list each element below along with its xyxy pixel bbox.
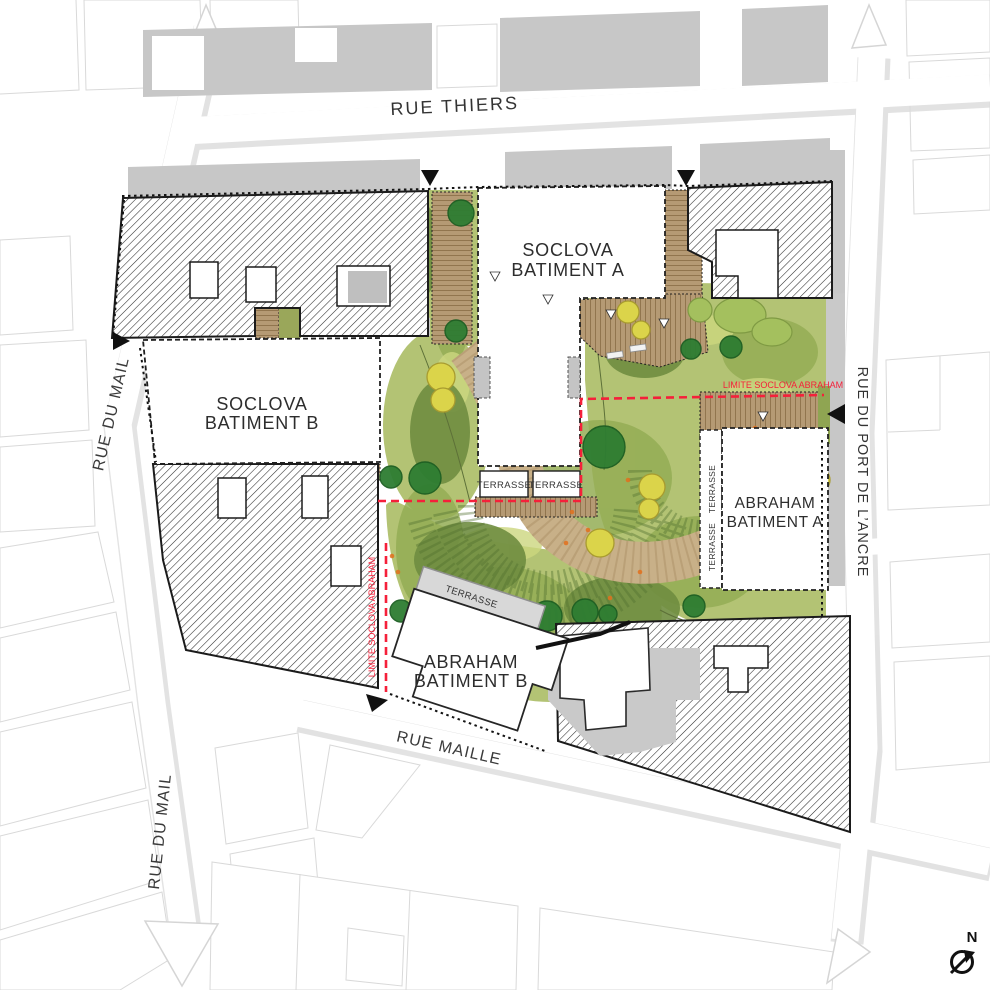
- limit-label-left: LIMITE SOCLOVA ABRAHAM: [367, 557, 377, 677]
- terrasse-label-2: TERRASSE: [529, 480, 583, 491]
- building-abraham-b-label-line2: BATIMENT B: [414, 671, 528, 691]
- soclova-a-balcony-right: [568, 357, 580, 398]
- terrasse-label-1: TERRASSE: [477, 480, 531, 491]
- terrasse-label-4: TERRASSE: [707, 523, 717, 571]
- building-soclova-a-label-line2: BATIMENT A: [511, 260, 624, 280]
- north-label: N: [967, 929, 978, 946]
- terrasse-label-3: TERRASSE: [707, 465, 717, 513]
- building-soclova-b-label-line1: SOCLOVA: [216, 394, 307, 414]
- label-rue-du-port: RUE DU PORT DE L’ANCRE: [854, 367, 870, 578]
- building-abraham-b-label-line1: ABRAHAM: [424, 652, 519, 672]
- site-plan-canvas: SOCLOVA BATIMENT B SOCLOVA BATIMENT A TE…: [0, 0, 990, 990]
- building-abraham-a-label-line2: BATIMENT A: [727, 514, 824, 531]
- building-soclova-b-label-line2: BATIMENT B: [205, 413, 319, 433]
- limit-label-right: LIMITE SOCLOVA ABRAHAM: [723, 380, 843, 390]
- building-soclova-a-label-line1: SOCLOVA: [522, 240, 613, 260]
- building-abraham-a-label-line1: ABRAHAM: [735, 495, 816, 512]
- soclova-a-balcony-left: [474, 357, 490, 398]
